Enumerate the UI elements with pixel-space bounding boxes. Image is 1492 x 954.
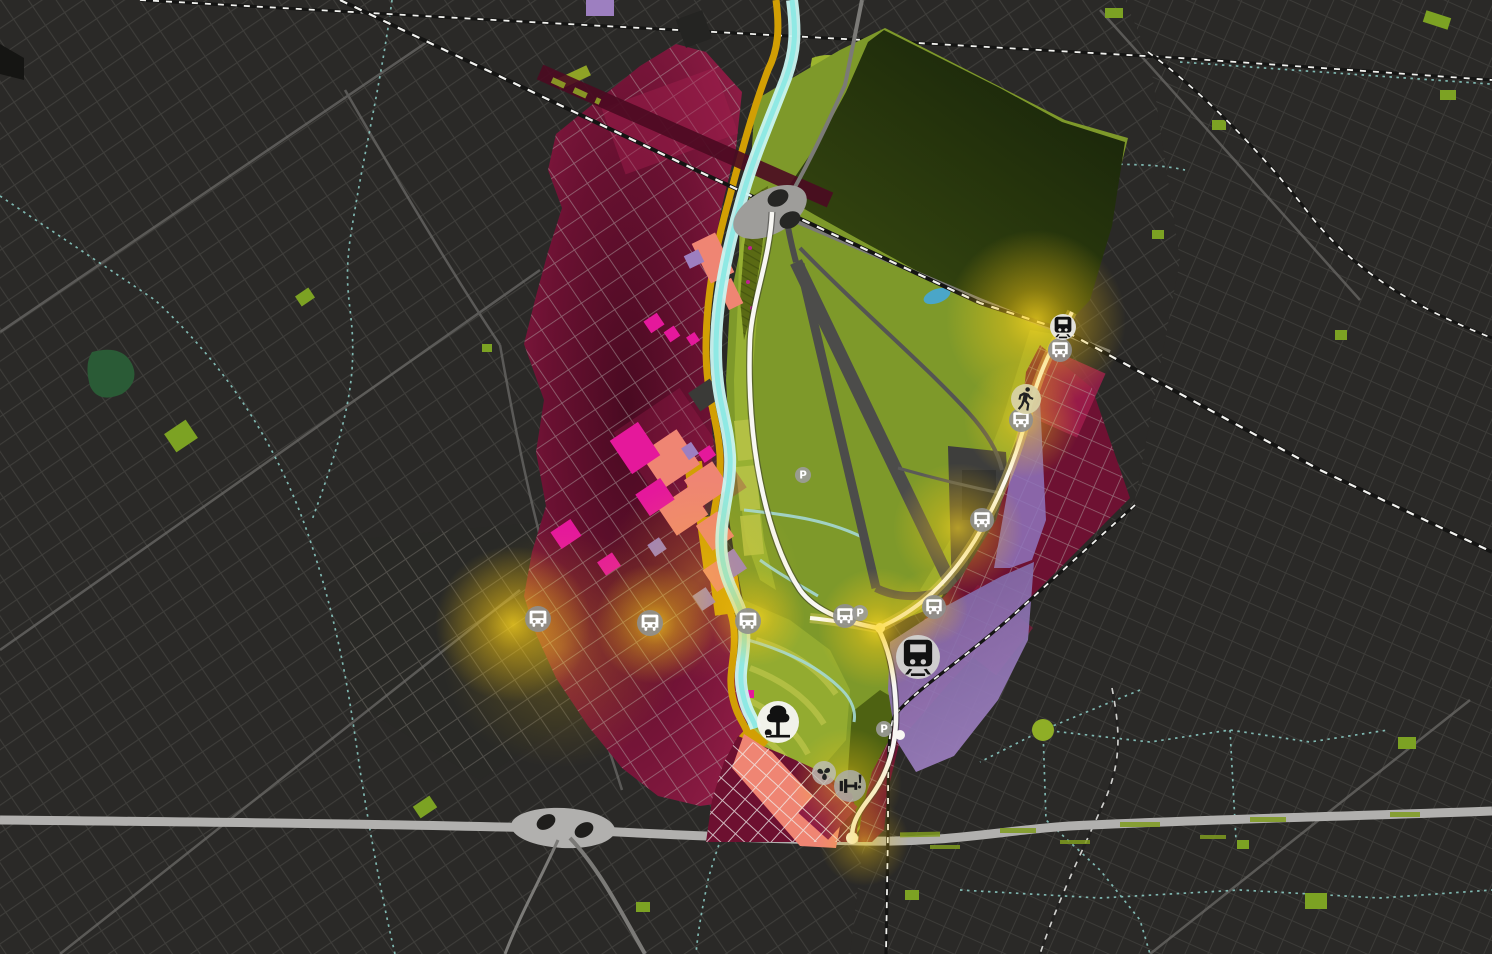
bus-stop-marker[interactable] [637,610,663,636]
parking-marker[interactable]: P [795,467,811,483]
parking-label: P [880,724,888,736]
glow-spot [946,230,1126,410]
train-station-marker[interactable] [896,635,940,679]
pinwheel-marker-circle [812,761,836,785]
playground-poi-marker[interactable] [812,761,836,785]
parking-label: P [856,608,864,620]
green-circle-node [1032,719,1054,741]
parking-marker[interactable]: P [876,721,892,737]
pedestrian-area-marker[interactable] [1011,384,1041,414]
map-canvas[interactable]: PPP [0,0,1492,954]
parking-label: P [799,470,807,482]
bus-stop-marker[interactable] [922,595,946,619]
glow-spot [819,796,909,886]
bus-stop-marker[interactable] [1048,338,1072,362]
bus-stop-marker[interactable] [525,606,551,632]
parking-marker[interactable]: P [852,605,868,621]
bus-stop-marker[interactable] [970,508,994,532]
glow-spot [893,463,1023,593]
masterplan-map: PPP [0,0,1492,954]
bus-stop-marker[interactable] [735,608,761,634]
glow-spot [600,480,800,680]
route-node [895,730,905,740]
fitness-poi-marker[interactable] [834,770,866,802]
rail-station-marker[interactable] [1050,314,1076,340]
park-poi-marker[interactable] [757,701,799,743]
